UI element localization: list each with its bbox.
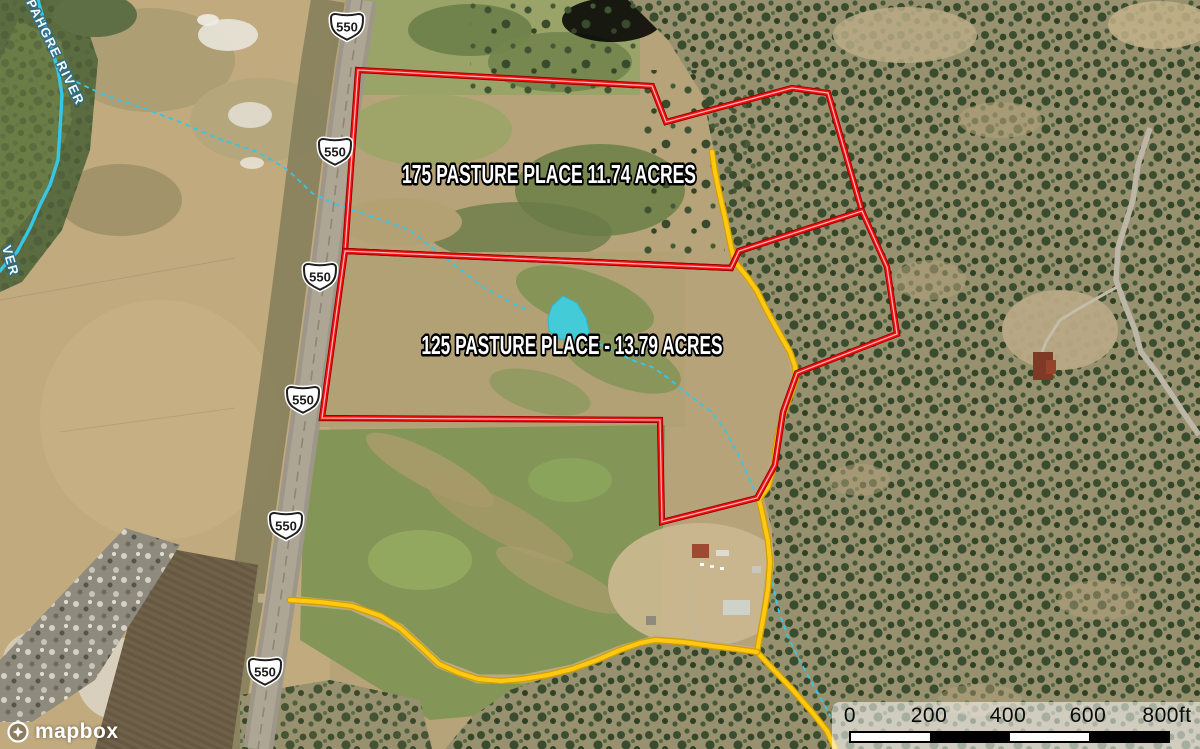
highway-shield-550: 550: [270, 513, 302, 539]
parcel-label-0: 175 PASTURE PLACE 11.74 ACRES: [402, 159, 696, 189]
river-label-upper: PAHGRE RIVER: [23, 0, 87, 108]
stream-line: [68, 78, 530, 311]
road-west-casing: [290, 600, 757, 681]
scale-segment: [930, 733, 1009, 741]
highway-shield-550: 550: [319, 139, 351, 165]
scale-bar-segments: [849, 731, 1170, 743]
svg-text:550: 550: [292, 393, 314, 408]
scale-tick-label: 800ft: [1142, 704, 1191, 728]
map-overlays: 550550550550550550PAHGRE RIVERVER175 PAS…: [0, 0, 1200, 749]
highway-shield-550: 550: [304, 264, 336, 290]
parcel-label-1: 125 PASTURE PLACE - 13.79 ACRES: [422, 330, 723, 360]
svg-text:550: 550: [275, 519, 297, 534]
map-canvas[interactable]: 550550550550550550PAHGRE RIVERVER175 PAS…: [0, 0, 1200, 749]
scale-tick-label: 200: [911, 704, 948, 728]
scale-tick-label: 400: [990, 704, 1027, 728]
svg-text:550: 550: [254, 665, 276, 680]
highway-shield-550: 550: [287, 387, 319, 413]
svg-text:550: 550: [324, 145, 346, 160]
highway-shield-550: 550: [249, 659, 281, 685]
mapbox-logo-icon: [6, 720, 30, 744]
scale-tick-label: 600: [1070, 704, 1107, 728]
scale-segment: [851, 733, 930, 741]
parcel-boundary-1: [322, 211, 897, 522]
svg-text:550: 550: [336, 20, 358, 35]
svg-text:550: 550: [309, 270, 331, 285]
highway-shield-550: 550: [331, 14, 363, 40]
scale-tick-label: 0: [844, 704, 856, 728]
mapbox-attribution[interactable]: mapbox: [6, 720, 119, 744]
stream-line: [592, 340, 830, 716]
scale-segment: [1089, 733, 1168, 741]
scale-bar: 0 200 400 600 800ft: [832, 702, 1200, 749]
scale-segment: [1010, 733, 1089, 741]
mapbox-logo-text: mapbox: [35, 720, 119, 744]
